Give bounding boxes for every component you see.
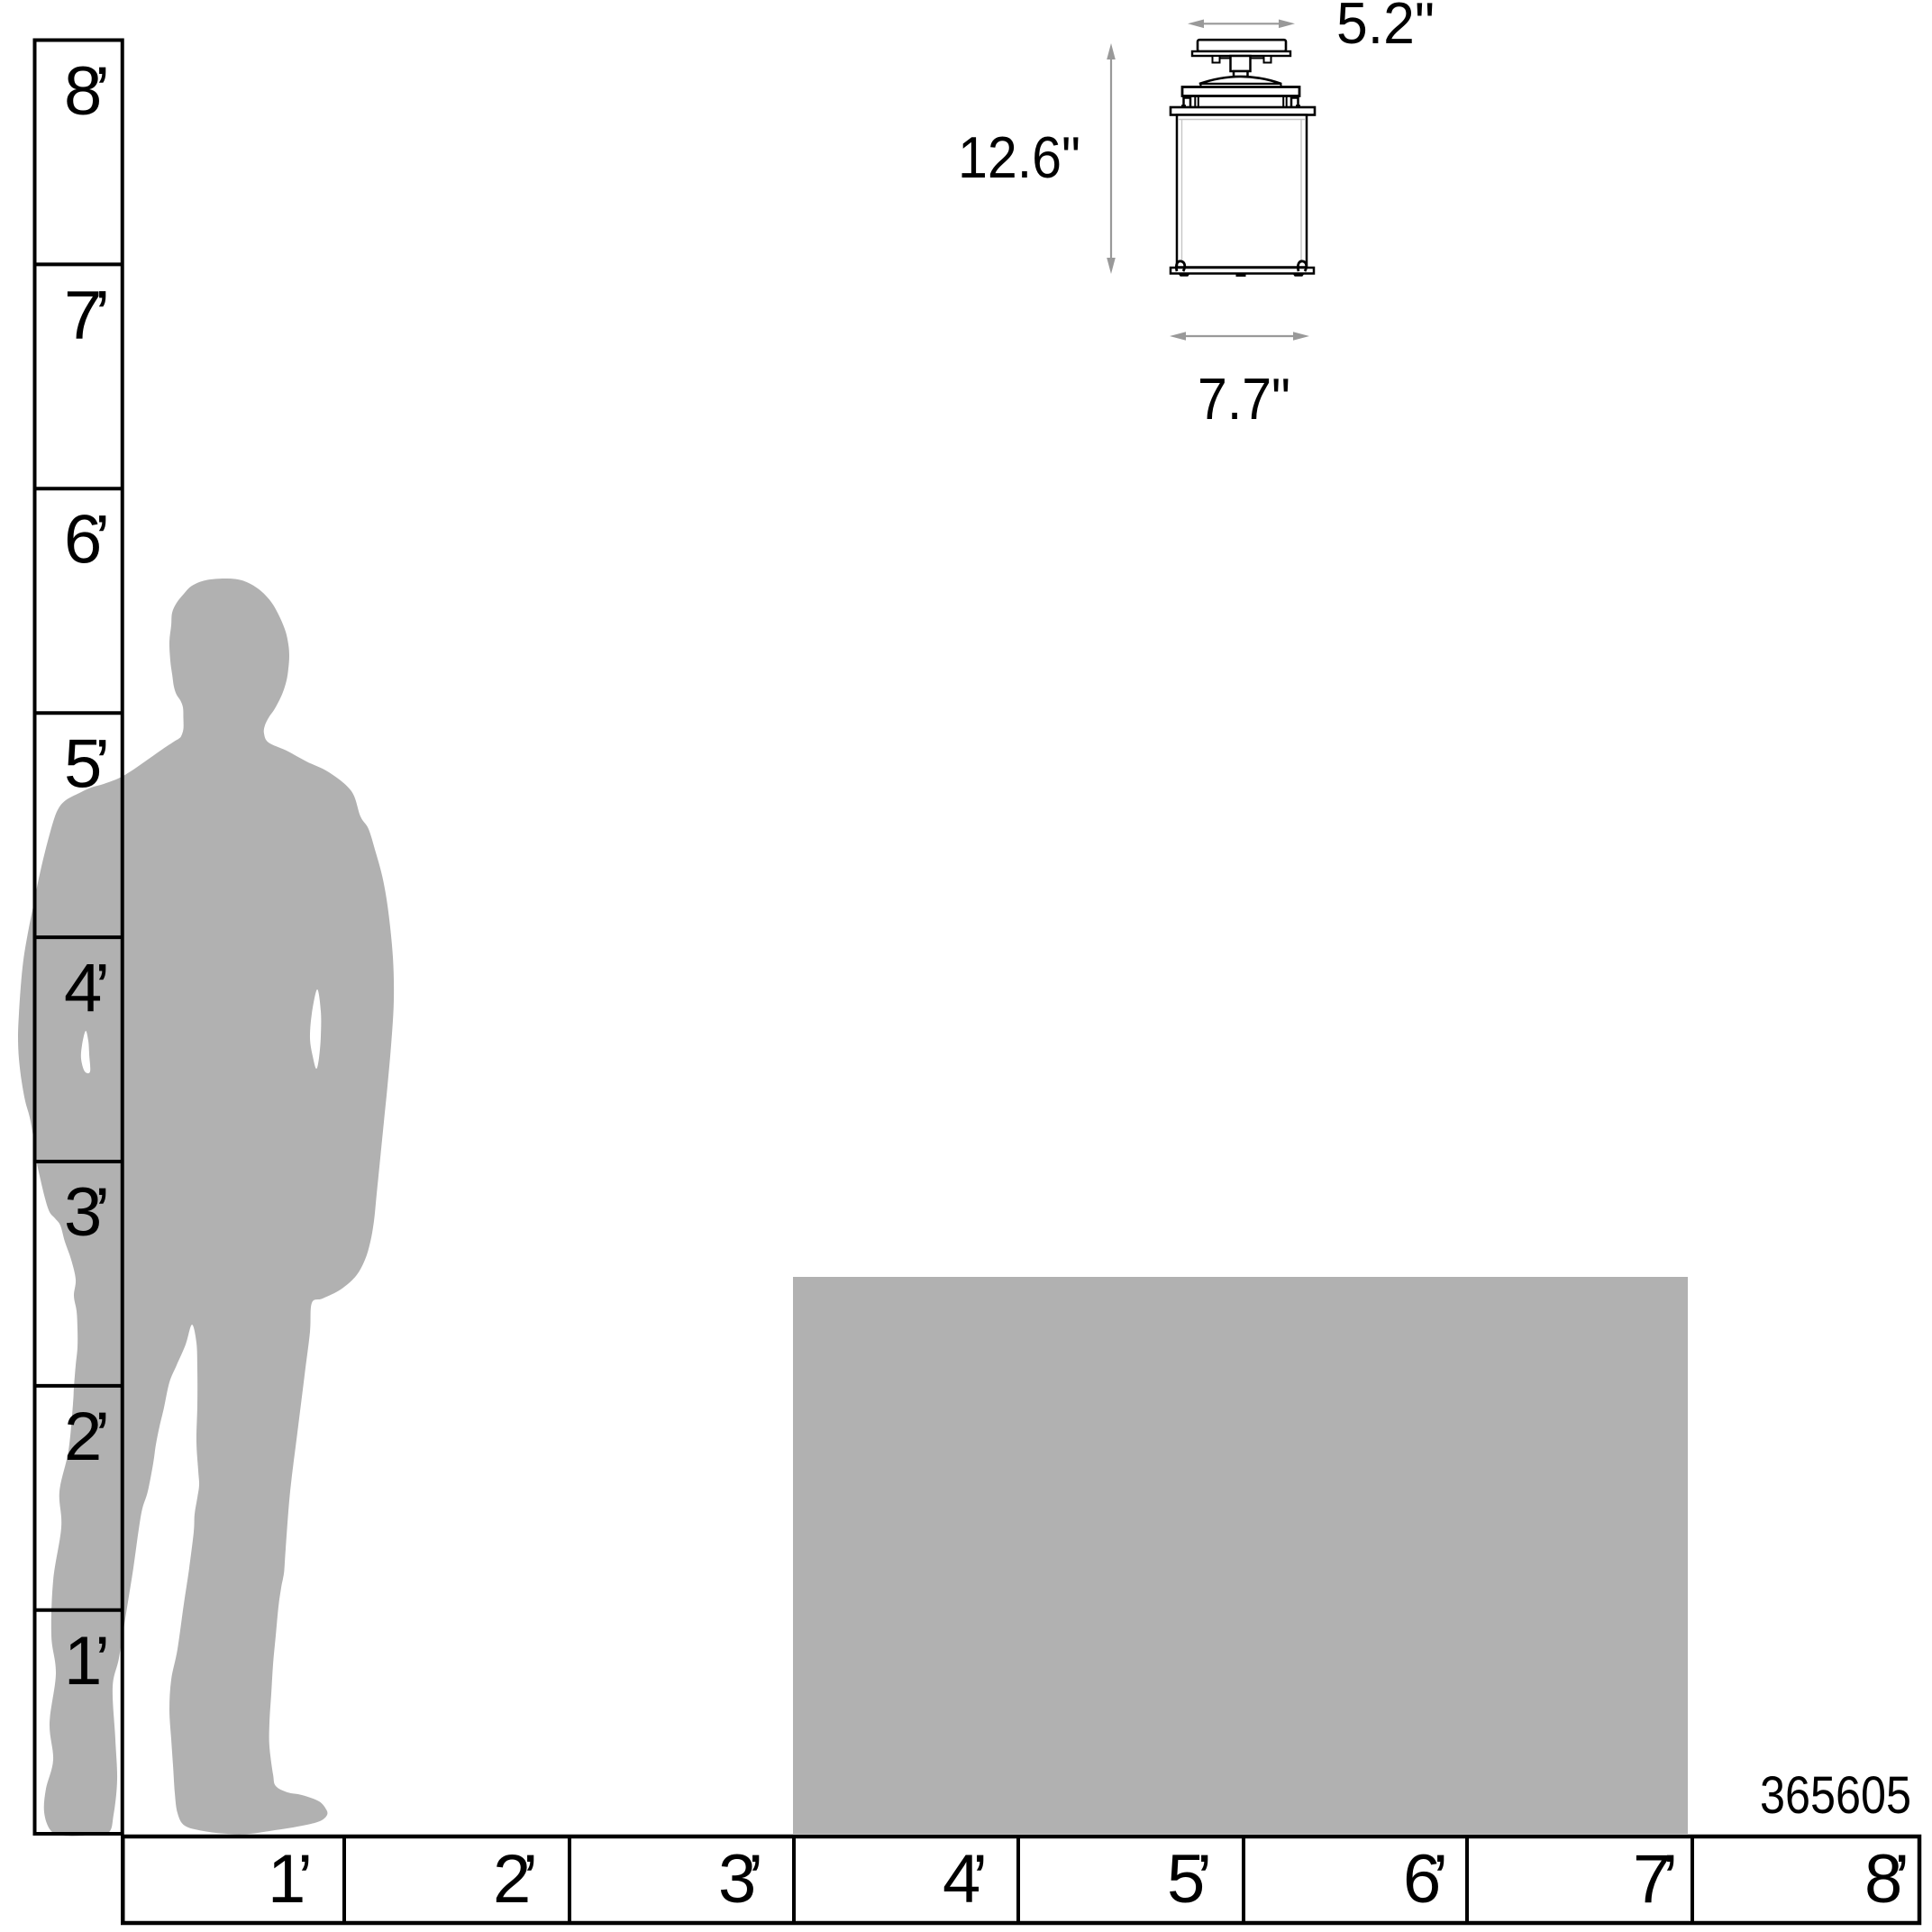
svg-text:12.6": 12.6" (958, 124, 1080, 190)
svg-text:3’: 3’ (64, 1174, 110, 1251)
svg-text:7’: 7’ (64, 278, 110, 354)
svg-text:5’: 5’ (1167, 1841, 1212, 1918)
svg-text:5’: 5’ (64, 725, 110, 802)
svg-text:365605: 365605 (1760, 1766, 1911, 1825)
svg-text:2’: 2’ (64, 1399, 110, 1475)
svg-text:8’: 8’ (64, 53, 110, 130)
svg-text:1’: 1’ (64, 1623, 110, 1700)
svg-text:5.2": 5.2" (1336, 0, 1435, 56)
svg-text:1’: 1’ (268, 1841, 313, 1918)
svg-text:3’: 3’ (718, 1841, 763, 1918)
svg-text:6’: 6’ (1403, 1841, 1448, 1918)
svg-text:8’: 8’ (1864, 1841, 1909, 1918)
svg-text:7.7": 7.7" (1198, 366, 1290, 432)
svg-text:2’: 2’ (493, 1841, 538, 1918)
svg-text:4’: 4’ (64, 950, 110, 1026)
svg-text:4’: 4’ (943, 1841, 988, 1918)
svg-text:6’: 6’ (64, 502, 110, 579)
svg-text:7’: 7’ (1633, 1841, 1678, 1918)
